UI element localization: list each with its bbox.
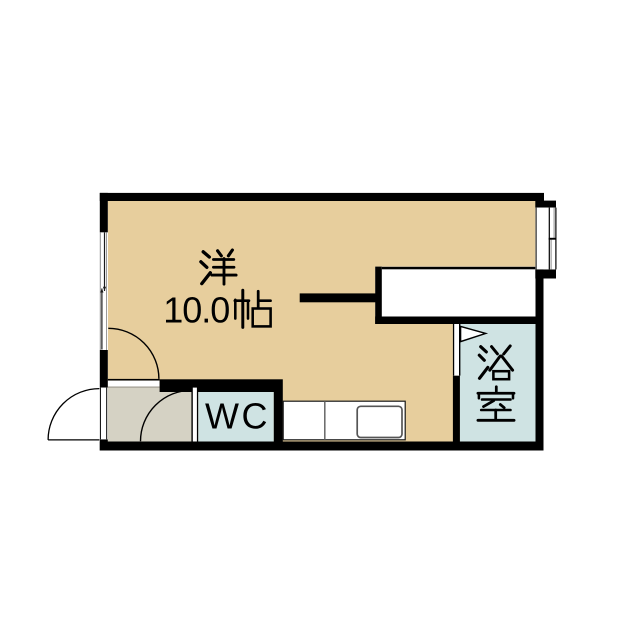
- svg-text:10.0: 10.0: [163, 290, 229, 331]
- svg-text:WC: WC: [205, 395, 270, 436]
